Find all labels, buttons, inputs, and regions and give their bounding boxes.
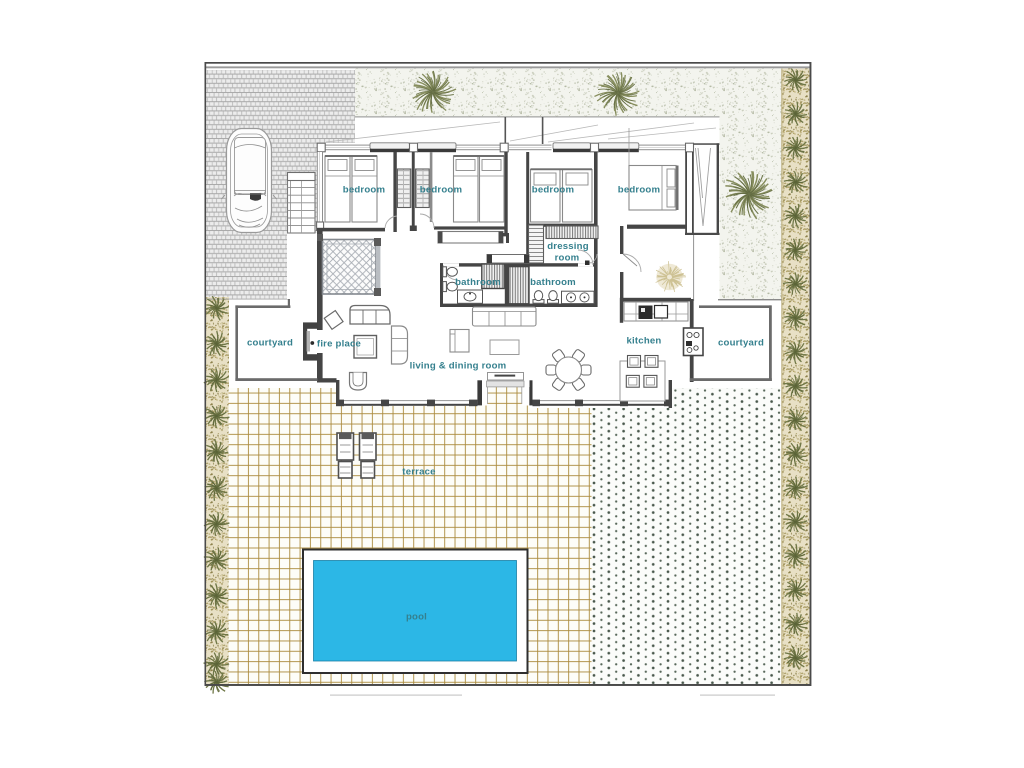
svg-text:bedroom: bedroom [343,184,385,195]
svg-text:dressing: dressing [547,241,589,252]
svg-text:fire place: fire place [317,338,361,349]
svg-text:courtyard: courtyard [718,337,764,348]
svg-text:kitchen: kitchen [627,335,662,346]
svg-text:living & dining room: living & dining room [410,360,507,371]
svg-text:bedroom: bedroom [420,184,462,195]
svg-text:bathroom: bathroom [455,277,501,288]
svg-text:room: room [555,253,580,264]
svg-text:bedroom: bedroom [532,184,574,195]
svg-text:bathroom: bathroom [530,277,576,288]
svg-text:terrace: terrace [402,466,435,477]
svg-text:pool: pool [406,611,427,622]
svg-text:courtyard: courtyard [247,337,293,348]
svg-text:bedroom: bedroom [618,184,660,195]
